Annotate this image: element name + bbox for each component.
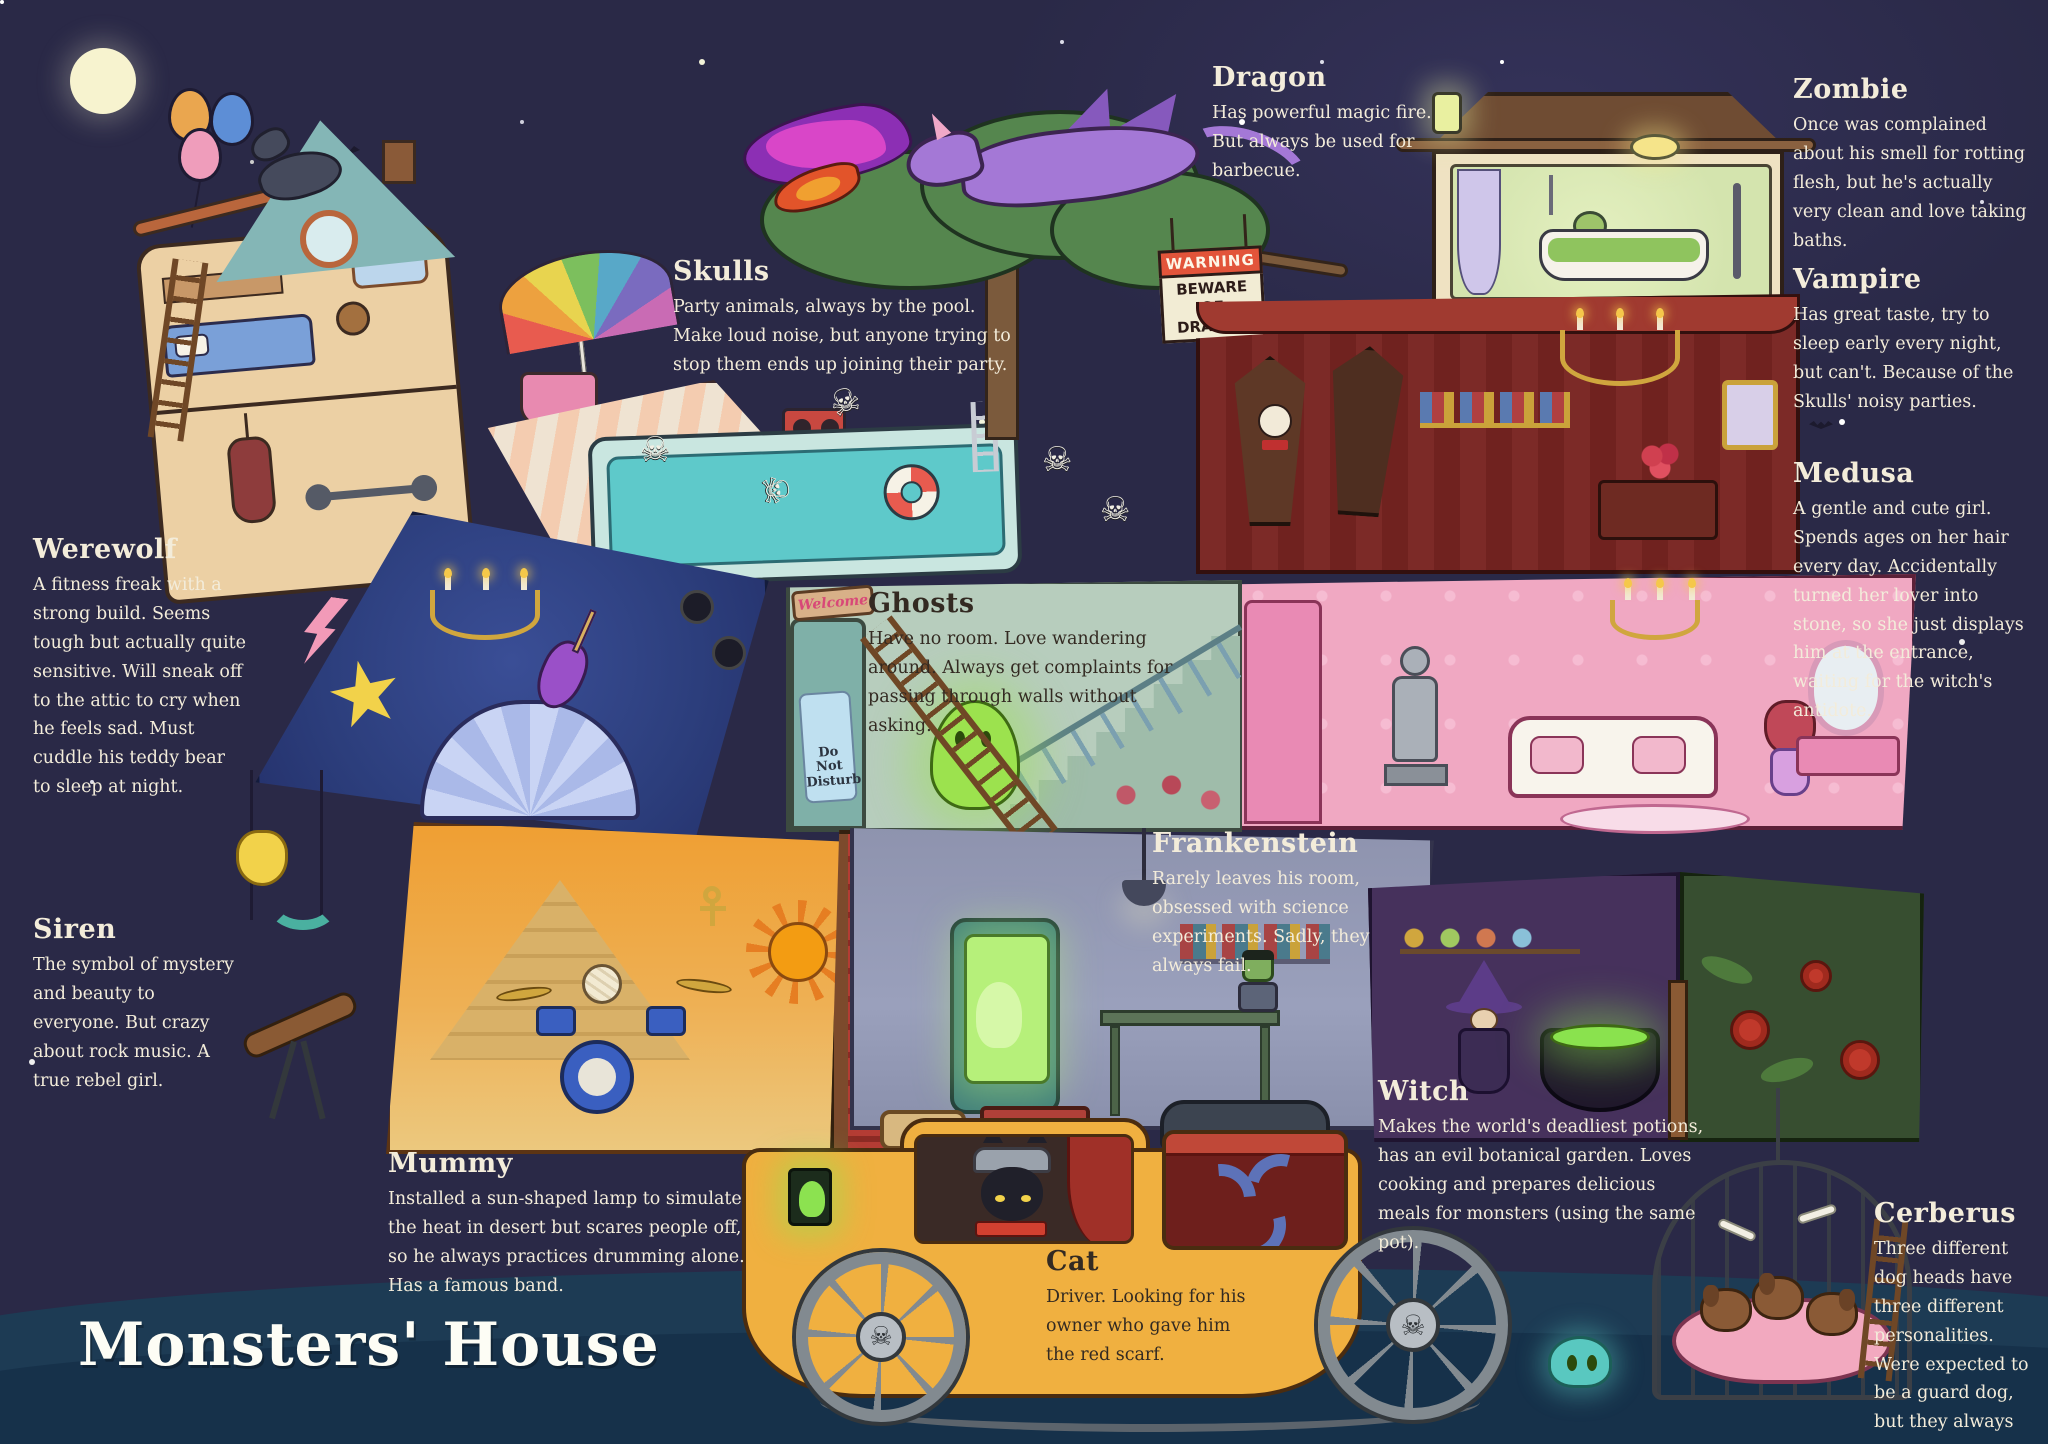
vampire-label: Vampire Has great taste, try to sleep ea… [1793,264,2033,417]
bottle-shelf [1420,392,1570,428]
skeleton-icon: ☠ [640,430,670,470]
bat-icon [1809,421,1833,429]
window-curtain [1067,1137,1131,1244]
barbell-plate [410,474,438,502]
do-not-disturb-sign: Do Not Disturb [798,690,858,803]
garden-rose [1730,1010,1770,1050]
ghost-lantern [788,1168,832,1226]
ghosts-label: Ghosts Have no room. Love wandering arou… [868,588,1178,741]
witch-label: Witch Makes the world's deadliest potion… [1378,1076,1708,1257]
vampire-bowtie [1262,440,1288,450]
cat-driver [981,1167,1043,1221]
passenger-window [1162,1130,1348,1250]
medusa-label: Medusa A gentle and cute girl. Spends ag… [1793,458,2028,726]
attic-round-window [300,210,358,268]
bathroom-lamp [1630,134,1680,160]
vampire-label-body: Has great taste, try to sleep early ever… [1793,301,2033,417]
moon [70,48,136,114]
ghosts-label-body: Have no room. Love wandering around. Alw… [868,625,1178,741]
vampire-curtain-valance [1196,294,1800,334]
specimen-tank [950,918,1060,1114]
cat-ear [1027,1134,1047,1143]
cerberus-label: Cerberus Three different dog heads have … [1874,1198,2039,1444]
teal-ghost [1548,1336,1612,1388]
drum-tom [646,1006,686,1036]
skulls-label: Skulls Party animals, always by the pool… [673,256,1018,380]
driver-window [914,1134,1134,1244]
mummy-figure [582,964,622,1004]
chandelier-icon [430,590,540,640]
shower-pipe [1549,175,1553,215]
witch-hat [1458,960,1510,1004]
skeleton-icon: ☠ [1042,440,1072,480]
rose-vines [1100,770,1230,820]
zombie-label: Zombie Once was complained about his sme… [1793,74,2028,255]
skulls-label-title: Skulls [673,256,1018,287]
poster-title: Monsters' House [78,1310,660,1380]
medusa-sofa [1508,716,1718,798]
rose-bouquet [1640,440,1680,480]
cerberus-label-body: Three different dog heads have three dif… [1874,1235,2039,1444]
cat-label: Cat Driver. Looking for his owner who ga… [1046,1246,1246,1370]
cat-label-body: Driver. Looking for his owner who gave h… [1046,1283,1246,1370]
witch-label-title: Witch [1378,1076,1708,1107]
rainbow-umbrella [492,237,681,354]
red-scarf [975,1221,1047,1237]
zombie-label-body: Once was complained about his smell for … [1793,111,2028,255]
ankh-icon [700,886,726,926]
ghosts-label-title: Ghosts [868,588,1178,619]
siren-tail [268,880,338,930]
telescope [240,989,360,1062]
frankenstein-label-body: Rarely leaves his room, obsessed with sc… [1152,865,1402,981]
punching-bag-rope [244,413,249,439]
desk-leg [1110,1026,1120,1116]
witch-label-body: Makes the world's deadliest potions, has… [1378,1113,1708,1257]
siren-label-body: The symbol of mystery and beauty to ever… [33,951,238,1095]
skull-hub-icon: ☠ [1386,1298,1440,1352]
siren-label-title: Siren [33,914,238,945]
sun-lamp [768,922,828,982]
cage-chain [1776,1088,1780,1162]
dragon-label: Dragon Has powerful magic fire. But alwa… [1212,62,1442,186]
barbell [311,483,431,501]
potion-shelf [1400,920,1580,954]
lab-desk [1100,1010,1280,1026]
bathtub [1539,229,1709,281]
telescope-leg [300,1040,325,1119]
skull-hub-icon: ☠ [856,1312,906,1362]
cat-label-title: Cat [1046,1246,1246,1277]
frankenstein-label-title: Frankenstein [1152,828,1402,859]
bone-icon [1796,1203,1837,1225]
vampire-figure [1258,404,1292,438]
medusa-closet [1244,600,1322,824]
zombie-label-title: Zombie [1793,74,2028,105]
shower-curtain [1457,169,1501,295]
drum-tom [536,1006,576,1036]
werewolf-label-title: Werewolf [33,534,248,565]
mummy-label-body: Installed a sun-shaped lamp to simulate … [388,1185,758,1301]
cat-ear [983,1134,1003,1143]
vampire-table [1598,480,1718,540]
mummy-label-title: Mummy [388,1148,758,1179]
werewolf-label-body: A fitness freak with a strong build. See… [33,571,248,802]
skeleton-icon: ☠ [1100,490,1130,530]
cat-eye [1021,1195,1031,1202]
bone-icon [1717,1217,1758,1242]
portrait-frame [1722,380,1778,450]
garden-rose [1800,960,1832,992]
vampire-label-title: Vampire [1793,264,2033,295]
chandelier-icon [1560,330,1680,386]
cerberus-head [1752,1276,1804,1320]
werewolf-label: Werewolf A fitness freak with a strong b… [33,534,248,802]
rear-curtain-valance [1166,1134,1344,1156]
vinyl-record [680,590,714,624]
mummy-label: Mummy Installed a sun-shaped lamp to sim… [388,1148,758,1301]
green-brew [1550,1024,1650,1050]
lab-lamp-cord [1142,828,1146,884]
stone-lover-statue [1388,646,1444,796]
frankenstein-label: Frankenstein Rarely leaves his room, obs… [1152,828,1402,981]
punching-bag [226,435,277,525]
kick-drum [560,1040,634,1114]
zombie-house [1432,150,1784,310]
tank-ghost [976,982,1022,1048]
green-bathwater [1548,238,1700,262]
cerberus-head [1700,1288,1752,1332]
medusa-label-title: Medusa [1793,458,2028,489]
teddy-bear [335,300,372,337]
skulls-label-body: Party animals, always by the pool. Make … [673,293,1018,380]
round-rug [1560,804,1750,834]
cerberus-head [1806,1292,1858,1336]
poster: ☠ ☠ ☠ ☠ ☠ WARNING BEWAREOF DRAGON [0,0,2048,1444]
zombie-bathroom [1450,164,1772,300]
vinyl-record [712,636,746,670]
siren-figure [236,830,288,886]
floor-lamp [1733,183,1741,279]
zombie-eave [1396,138,1816,152]
cat-eye [995,1195,1005,1202]
medusa-label-body: A gentle and cute girl. Spends ages on h… [1793,495,2028,726]
siren-label: Siren The symbol of mystery and beauty t… [33,914,238,1095]
star-field [0,0,4,4]
hall-door: Do Not Disturb [790,618,866,830]
botanical-garden [1680,872,1924,1142]
telescope-leg [269,1041,297,1120]
cerberus-label-title: Cerberus [1874,1198,2039,1229]
barbell-plate [304,483,332,511]
chandelier-icon [1610,600,1700,640]
dragon-label-body: Has powerful magic fire. But always be u… [1212,99,1442,186]
floor-divider [153,385,456,415]
dragon-label-title: Dragon [1212,62,1442,93]
garden-rose [1840,1040,1880,1080]
